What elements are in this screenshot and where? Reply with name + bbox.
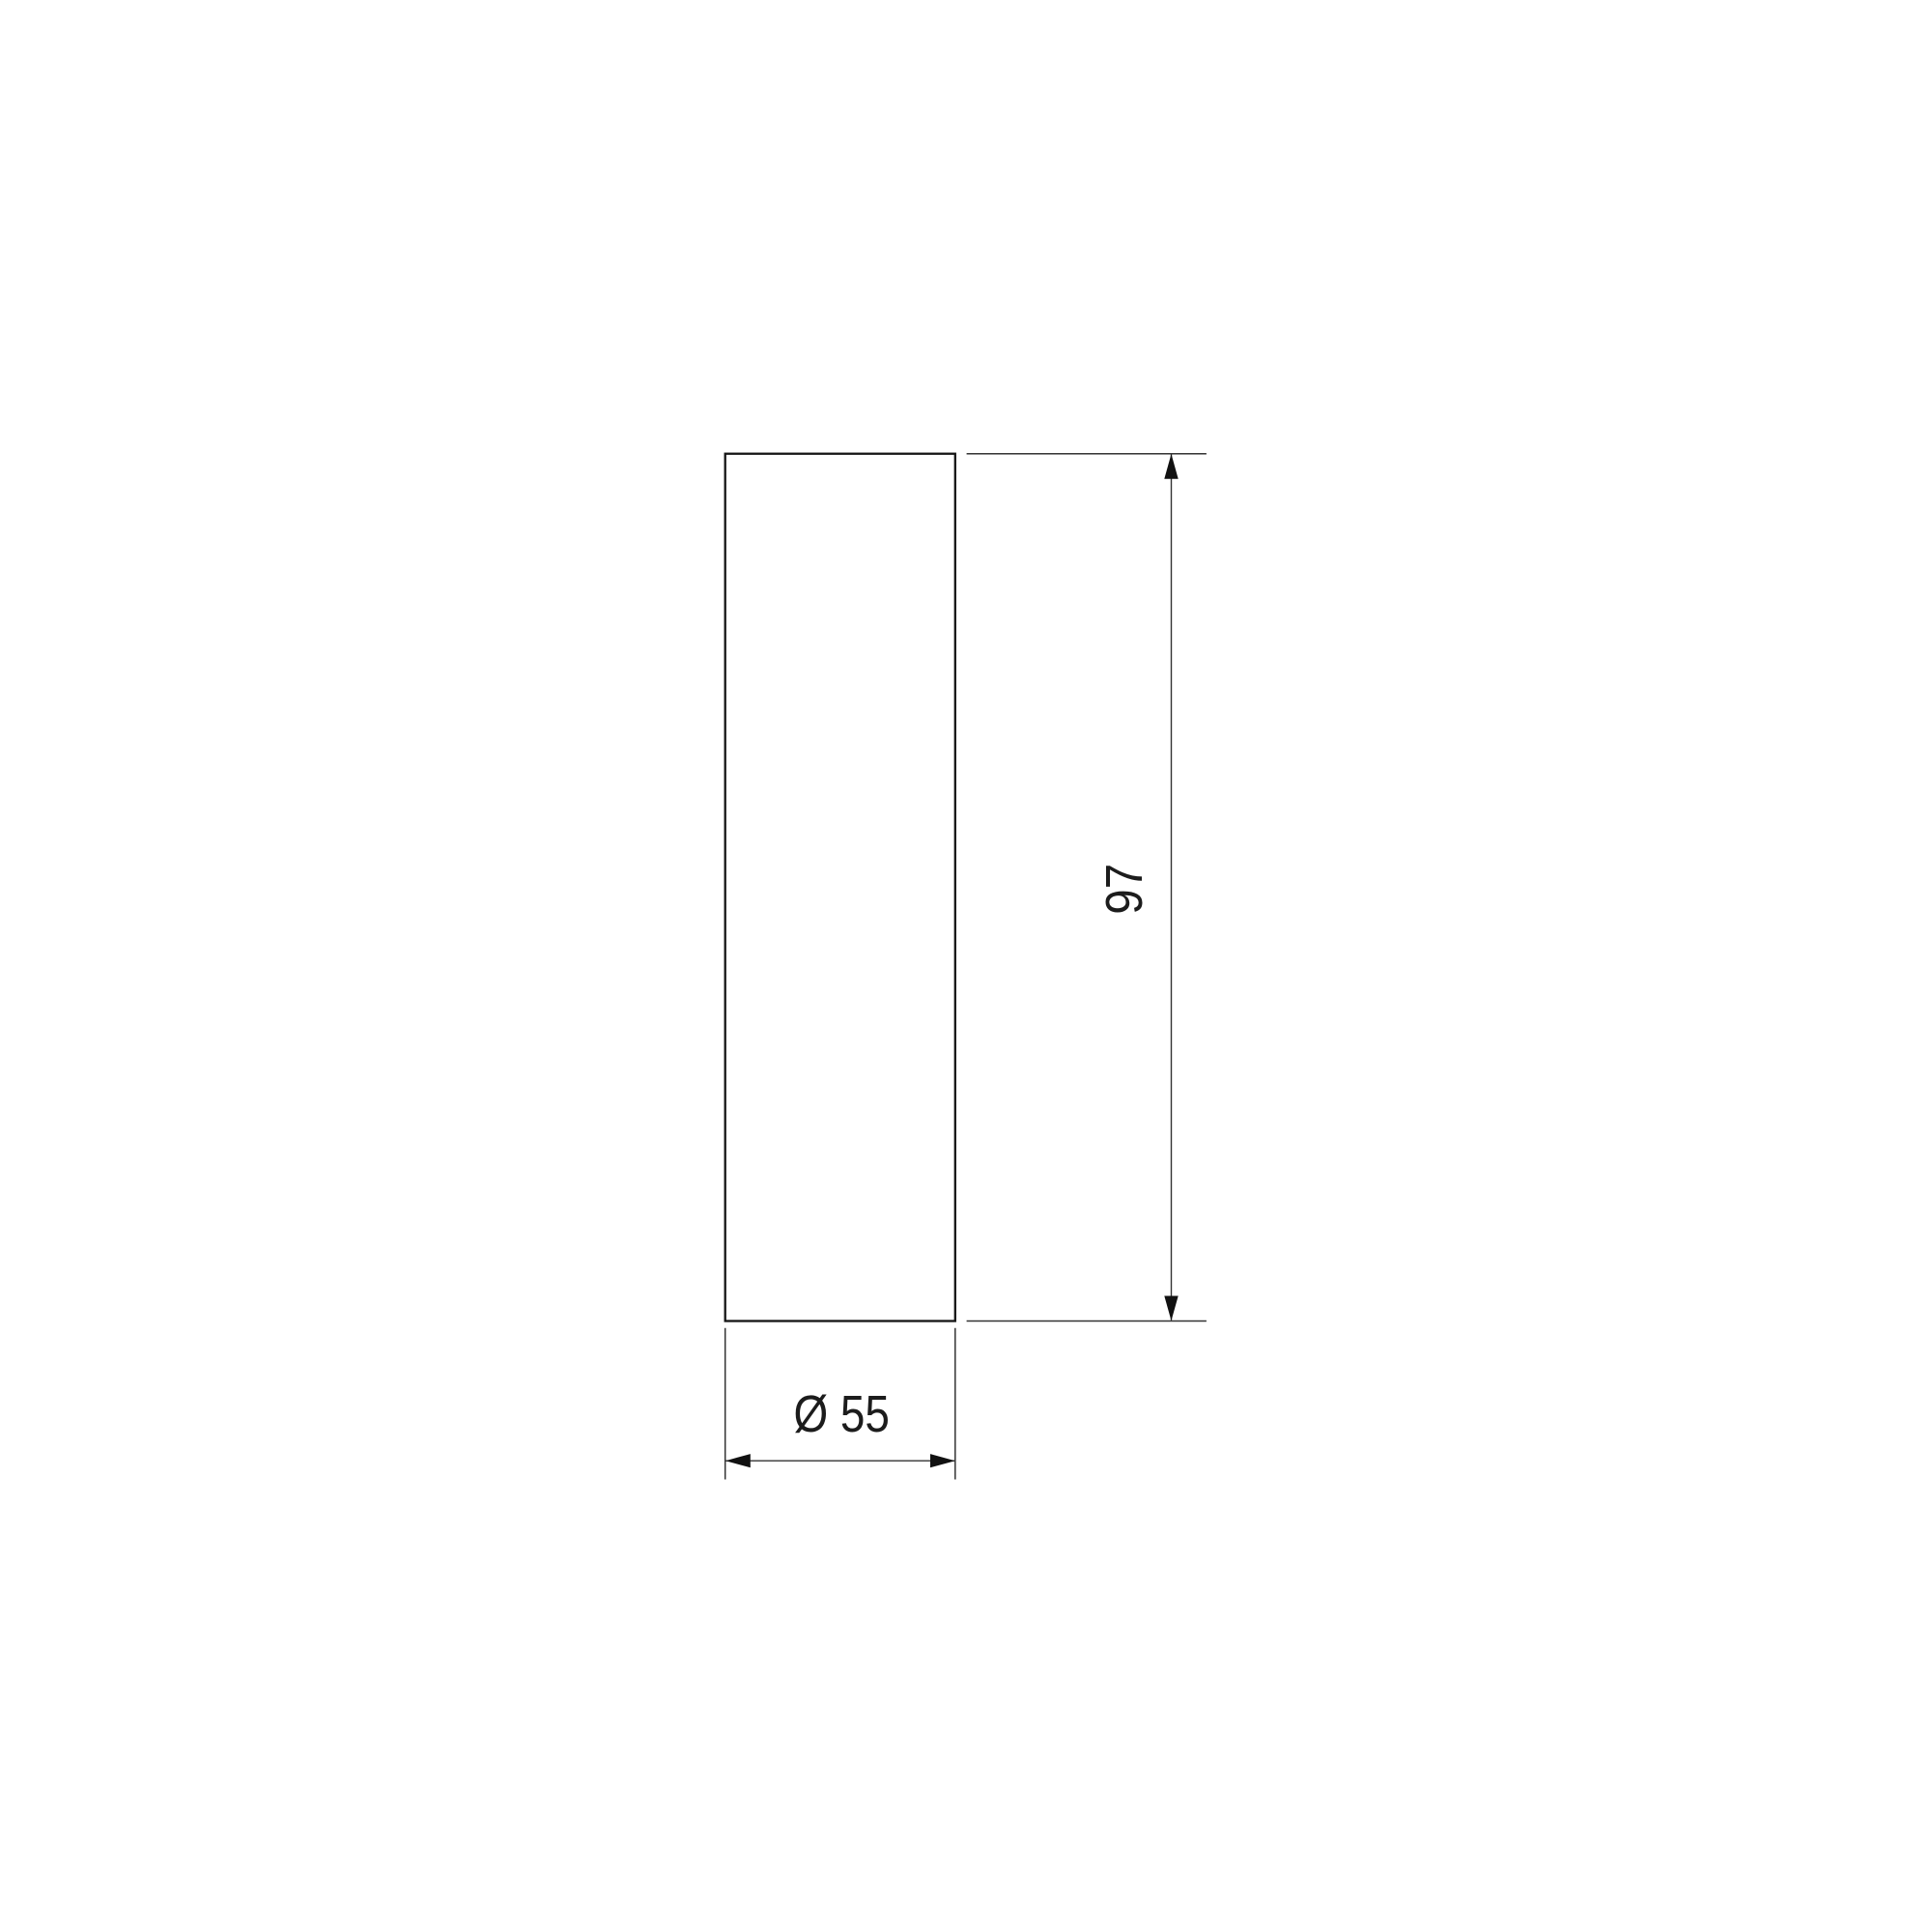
svg-text:Ø 55: Ø 55	[793, 1384, 890, 1442]
svg-text:97: 97	[1094, 864, 1153, 915]
